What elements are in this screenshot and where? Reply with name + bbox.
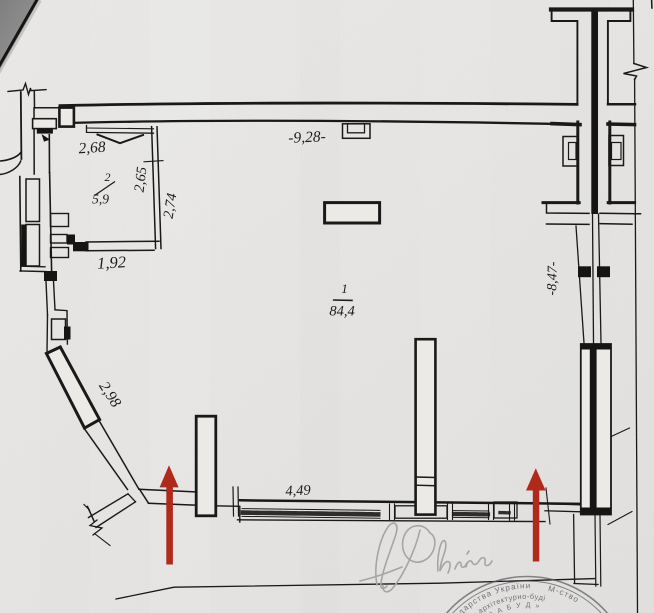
svg-text:-8,47-: -8,47- (545, 261, 561, 296)
svg-text:-9,28-: -9,28- (288, 128, 326, 147)
svg-text:2,68: 2,68 (78, 139, 106, 158)
svg-text:1,92: 1,92 (97, 252, 127, 272)
svg-text:84,4: 84,4 (329, 304, 354, 320)
svg-text:1: 1 (341, 281, 348, 296)
svg-text:2: 2 (105, 170, 111, 184)
svg-text:4,49: 4,49 (285, 482, 312, 499)
svg-text:5,9: 5,9 (92, 192, 109, 207)
svg-text:2,65: 2,65 (132, 166, 151, 193)
